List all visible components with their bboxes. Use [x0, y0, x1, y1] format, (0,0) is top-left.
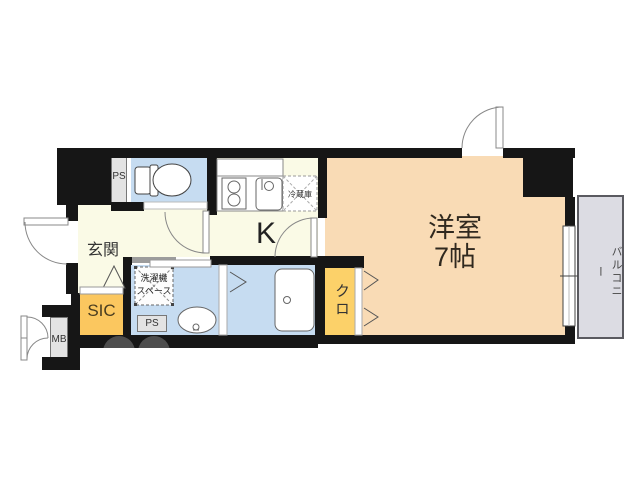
balcony-label: バルコニー	[592, 241, 624, 303]
floorplan: 洋室 7帖 K 玄関 SIC クロ バルコニー MB PS PS 洗濯機 スペー…	[0, 0, 640, 480]
bathtub-icon	[275, 269, 314, 331]
sic-door	[80, 287, 123, 294]
washbasin-icon	[178, 307, 216, 333]
living-top-door	[462, 107, 503, 148]
kitchen-label: K	[248, 217, 284, 251]
laundry-line1: 洗濯機	[133, 272, 175, 285]
shoe-closet-label: SIC	[80, 301, 123, 321]
laundry-line2: スペース	[133, 285, 175, 298]
pipe-space-top-label: PS	[111, 171, 127, 182]
entrance-step-mark	[103, 266, 125, 288]
living-room-size: 7帖	[405, 243, 505, 272]
entrance-label: 玄関	[80, 236, 126, 260]
toilet-icon	[135, 164, 191, 196]
stove-icon	[222, 178, 246, 209]
balcony-window	[560, 226, 578, 326]
living-room-name: 洋室	[405, 214, 505, 243]
sink-icon	[256, 178, 282, 210]
refrigerator-label: 冷蔵庫	[283, 189, 317, 200]
pipe-space-bottom-label: PS	[137, 318, 167, 329]
closet-label: クロ	[331, 272, 352, 330]
living-room-label: 洋室 7帖	[405, 214, 505, 272]
laundry-space-label: 洗濯機 スペース	[133, 272, 175, 298]
entrance-door	[24, 218, 68, 264]
meter-box-label: MB	[50, 334, 68, 345]
toilet-door	[144, 202, 209, 253]
closet-doors	[355, 268, 378, 335]
bathroom-door	[219, 265, 246, 335]
washroom-sliding-door	[132, 257, 211, 267]
meter-box-doors	[21, 316, 48, 360]
